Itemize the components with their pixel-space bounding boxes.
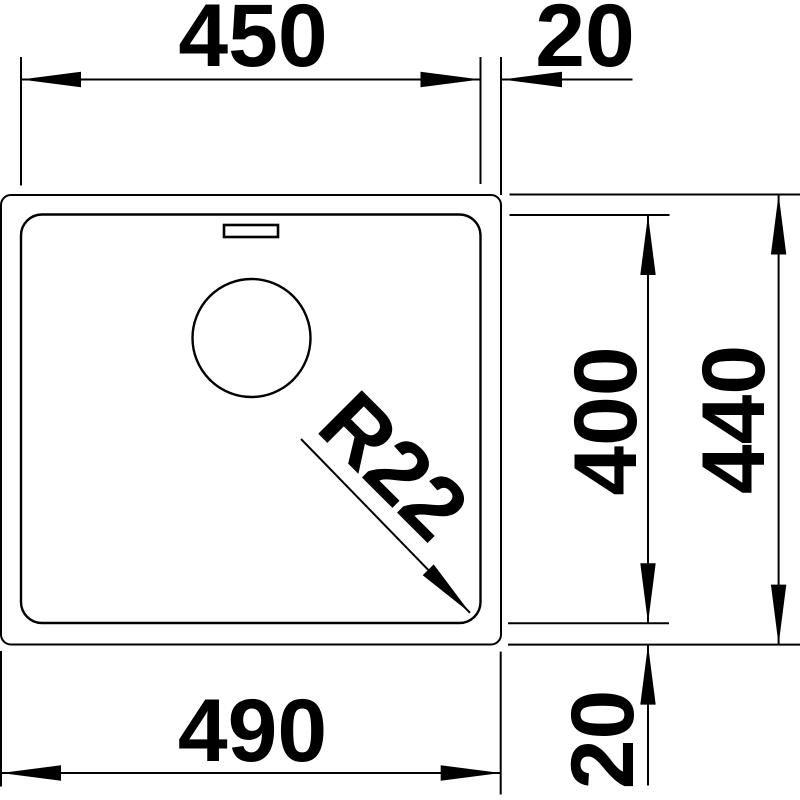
svg-text:450: 450 [178,0,327,85]
svg-text:20: 20 [535,0,635,85]
svg-text:490: 490 [178,680,327,780]
svg-text:400: 400 [555,346,655,495]
svg-text:440: 440 [683,345,783,494]
svg-text:20: 20 [552,690,652,790]
